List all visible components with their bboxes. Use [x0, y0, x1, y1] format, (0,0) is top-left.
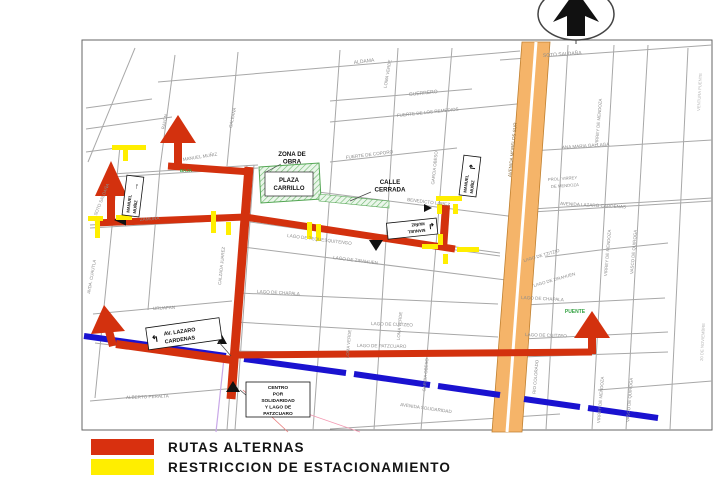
sign-text: POR: [273, 392, 284, 398]
restriccion-swatch: [91, 459, 154, 475]
legend: RUTAS ALTERNAS RESTRICCION DE ESTACIONAM…: [91, 437, 451, 477]
sign-text: SOLIDARIDAD: [261, 398, 295, 404]
legend-row-restriccion: RESTRICCION DE ESTACIONAMIENTO: [91, 457, 451, 477]
puente-label: PUENTE: [565, 309, 586, 315]
sign-arrow-icon: ↰: [151, 333, 160, 344]
detour-map-page: AVENIDA MORELOS SUR PLAZA CARRILLO: [0, 0, 720, 480]
sign-text: PATZCUARO: [263, 411, 293, 417]
sign-arrow-icon: →: [131, 182, 141, 191]
baja-label: BAJA: [180, 168, 193, 173]
plaza-carrillo-label: CARRILLO: [274, 186, 305, 192]
rutas-alternas-label: RUTAS ALTERNAS: [168, 440, 305, 455]
plaza-carrillo-label: PLAZA: [279, 178, 300, 184]
rutas-alternas-swatch: [91, 439, 154, 455]
sign-text: CENTRO: [268, 385, 289, 391]
sign-text: Y LAGO DE: [265, 405, 292, 411]
restriccion-label: RESTRICCION DE ESTACIONAMIENTO: [168, 460, 451, 475]
plaza-carrillo-box: [265, 172, 313, 196]
sign-arrow-icon: ↱: [468, 163, 478, 171]
map-canvas: AVENIDA MORELOS SUR PLAZA CARRILLO: [0, 0, 720, 480]
calle-cerrada-label: CALLE: [380, 179, 401, 186]
sign-centro-solidaridad: CENTRO POR SOLIDARIDAD Y LAGO DE PATZCUA…: [246, 382, 310, 417]
street-label: LAGO DE PATZCUARO: [357, 343, 407, 349]
calle-cerrada-label: CERRADA: [375, 187, 406, 194]
zona-de-obra-label: OBRA: [283, 159, 302, 166]
sign-arrow-icon: ↲: [428, 221, 436, 231]
legend-row-rutas: RUTAS ALTERNAS: [91, 437, 451, 457]
compass: [538, 0, 614, 44]
zona-de-obra-label: ZONA DE: [278, 151, 306, 158]
